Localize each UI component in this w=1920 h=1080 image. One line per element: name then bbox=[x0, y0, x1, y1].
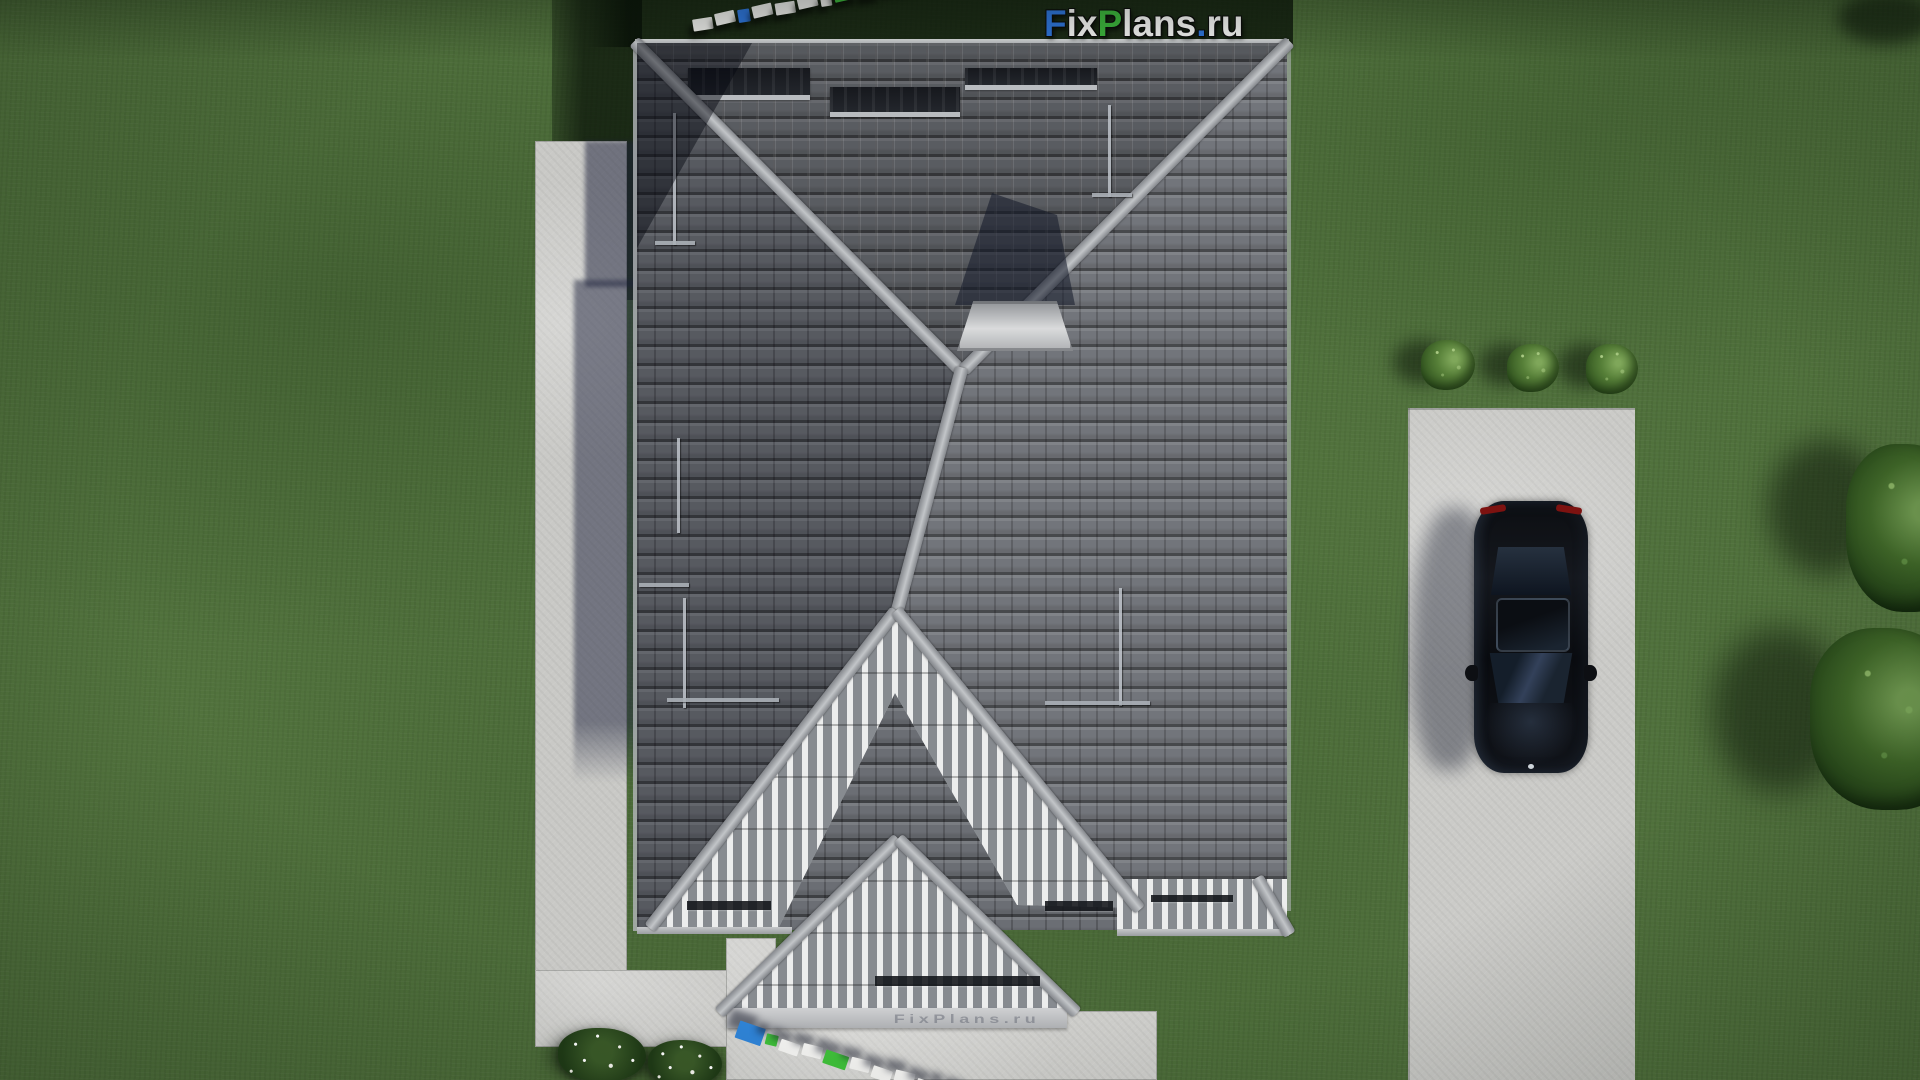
car-mirror-right bbox=[1584, 665, 1597, 681]
letter-tile bbox=[765, 1033, 779, 1047]
aerial-render-scene: FixPlans.ru bbox=[0, 0, 1920, 1080]
car-roof-sunroof bbox=[1496, 598, 1570, 652]
roof-vent-bar bbox=[687, 901, 771, 910]
roof-window bbox=[965, 68, 1097, 90]
roof-vent-bar bbox=[1045, 901, 1113, 911]
letter-tile bbox=[893, 1069, 915, 1080]
letter-tile bbox=[801, 1043, 823, 1059]
house-roof: FixPlans.ru bbox=[637, 43, 1287, 1038]
car bbox=[1468, 497, 1594, 777]
snow-guard-bar bbox=[1092, 193, 1132, 197]
chimney bbox=[957, 301, 1073, 351]
letter-tile bbox=[737, 8, 751, 23]
edge-tree bbox=[1846, 444, 1920, 612]
house-shadow-on-path-upper bbox=[585, 141, 637, 287]
roof-window bbox=[830, 87, 960, 117]
house-shadow-on-path-main bbox=[574, 280, 637, 782]
driveway-shrub bbox=[1421, 340, 1475, 390]
roof-vent-bar bbox=[875, 976, 1040, 986]
logo-segment: . bbox=[1196, 3, 1206, 44]
driveway-shrub bbox=[1507, 344, 1559, 392]
snow-guard-rod bbox=[1119, 588, 1122, 706]
snow-guard-bar bbox=[667, 698, 779, 702]
logo-segment: lans bbox=[1122, 3, 1196, 44]
snow-guard-rod bbox=[677, 438, 680, 533]
snow-guard-rod bbox=[683, 598, 686, 708]
flower-shrub bbox=[558, 1028, 646, 1080]
logo-segment: P bbox=[1097, 3, 1122, 44]
snow-guard-bar bbox=[639, 583, 689, 587]
logo-segment: ru bbox=[1206, 3, 1243, 44]
snow-guard-bar bbox=[1045, 701, 1150, 705]
car-windshield bbox=[1488, 653, 1574, 703]
logo-segment: ix bbox=[1067, 3, 1098, 44]
letter-tile bbox=[870, 1065, 893, 1080]
logo-segment: F bbox=[1044, 3, 1067, 44]
roof-eave-fascia-right-wing bbox=[1117, 929, 1289, 936]
roof-eave-fascia-left-wing bbox=[637, 927, 792, 934]
car-hood-highlight bbox=[1484, 703, 1578, 765]
car-mirror-left bbox=[1465, 665, 1478, 681]
car-rear-window bbox=[1490, 547, 1572, 595]
fascia-watermark: FixPlans.ru bbox=[840, 1012, 1095, 1026]
fixplans-logo: FixPlans.ru bbox=[1044, 5, 1243, 42]
tree-shadow-top-right bbox=[1838, 0, 1920, 44]
car-front-light-dot bbox=[1528, 764, 1534, 769]
snow-guard-bar bbox=[655, 241, 695, 245]
roof-vent-bar bbox=[1151, 895, 1233, 902]
snow-guard-rod bbox=[1108, 105, 1111, 197]
driveway-shrub bbox=[1586, 344, 1638, 394]
edge-tree bbox=[1810, 628, 1920, 810]
letter-tile bbox=[849, 1057, 871, 1073]
